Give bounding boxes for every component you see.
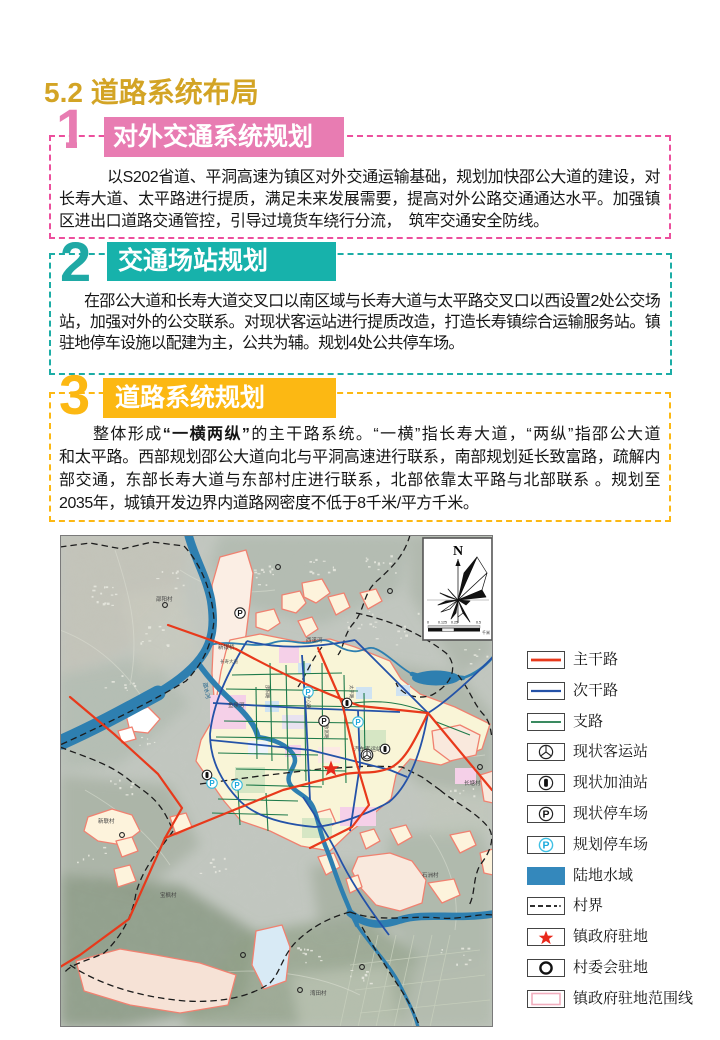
svg-text:致富路: 致富路 bbox=[323, 725, 330, 739]
svg-text:新联村: 新联村 bbox=[98, 817, 115, 825]
svg-text:P: P bbox=[355, 718, 361, 727]
svg-text:西溪河: 西溪河 bbox=[306, 636, 323, 644]
svg-text:邵阳村: 邵阳村 bbox=[156, 595, 173, 603]
svg-text:P: P bbox=[209, 779, 215, 788]
svg-text:邵阳路: 邵阳路 bbox=[264, 685, 271, 699]
svg-text:千米: 千米 bbox=[482, 629, 490, 635]
svg-text:P: P bbox=[542, 839, 549, 851]
svg-text:石洲村: 石洲村 bbox=[422, 871, 439, 879]
svg-text:湾田村: 湾田村 bbox=[310, 989, 327, 997]
svg-text:N: N bbox=[453, 544, 463, 559]
svg-text:0.25: 0.25 bbox=[451, 621, 458, 625]
svg-text:新银桥: 新银桥 bbox=[218, 643, 235, 651]
svg-text:0.125: 0.125 bbox=[438, 621, 447, 625]
svg-text:宝枫村: 宝枫村 bbox=[160, 891, 177, 899]
svg-text:长寿大道: 长寿大道 bbox=[220, 658, 238, 665]
svg-text:P: P bbox=[542, 809, 549, 821]
svg-text:汽车客运站: 汽车客运站 bbox=[354, 745, 382, 753]
svg-text:P: P bbox=[234, 781, 240, 790]
svg-text:P: P bbox=[237, 609, 243, 618]
svg-text:0: 0 bbox=[427, 621, 429, 625]
svg-text:鱼泉河: 鱼泉河 bbox=[228, 701, 245, 709]
svg-text:0.5: 0.5 bbox=[476, 621, 481, 625]
svg-text:中心路: 中心路 bbox=[305, 695, 312, 709]
svg-text:长塘村: 长塘村 bbox=[464, 779, 481, 787]
svg-text:太平路: 太平路 bbox=[348, 685, 355, 699]
